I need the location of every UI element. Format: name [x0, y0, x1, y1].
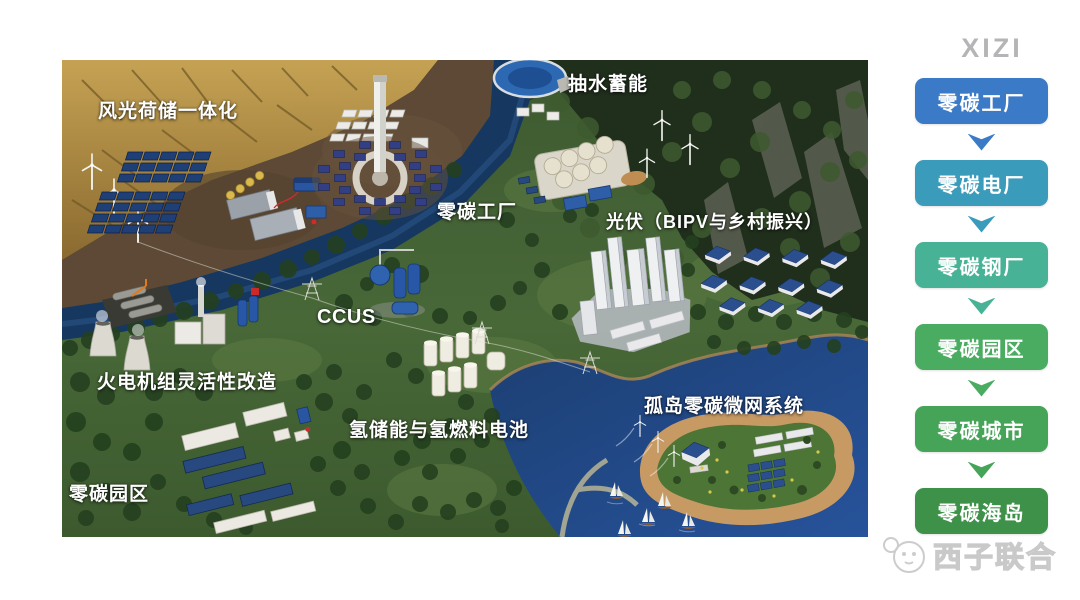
- label-wind-solar-load-storage: 风光荷储一体化: [98, 96, 238, 123]
- arrow-down-icon: [968, 298, 996, 315]
- flow-step-zero-carbon-city[interactable]: 零碳城市: [915, 406, 1048, 452]
- arrow-down-icon: [968, 134, 996, 151]
- watermark: 西子联合: [881, 533, 1057, 577]
- label-pv-bipv-rural: 光伏（BIPV与乡村振兴）: [606, 208, 823, 234]
- label-ccus: CCUS: [317, 306, 376, 329]
- xizi-logo: XIZI: [936, 33, 1048, 64]
- flow-step-zero-carbon-power-plant[interactable]: 零碳电厂: [915, 160, 1048, 206]
- arrow-down-icon: [968, 216, 996, 233]
- flow-step-zero-carbon-park[interactable]: 零碳园区: [915, 324, 1048, 370]
- zero-carbon-flow-sidebar: 零碳工厂 零碳电厂 零碳钢厂 零碳园区 零碳城市 零碳海岛: [915, 78, 1048, 534]
- label-pumped-storage: 抽水蓄能: [568, 69, 648, 96]
- flow-step-zero-carbon-factory[interactable]: 零碳工厂: [915, 78, 1048, 124]
- landscape-render: [62, 60, 868, 537]
- flow-step-zero-carbon-island[interactable]: 零碳海岛: [915, 488, 1048, 534]
- label-zero-carbon-park: 零碳园区: [69, 479, 149, 506]
- label-hydrogen-storage-fuel-cell: 氢储能与氢燃料电池: [349, 415, 529, 442]
- label-island-microgrid: 孤岛零碳微网系统: [644, 391, 804, 418]
- xizi-mascot-icon: [881, 533, 927, 577]
- label-thermal-flexibility-retrofit: 火电机组灵活性改造: [97, 367, 277, 394]
- island-microgrid: [640, 411, 855, 526]
- watermark-text: 西子联合: [933, 534, 1057, 576]
- flow-step-zero-carbon-steel-plant[interactable]: 零碳钢厂: [915, 242, 1048, 288]
- arrow-down-icon: [968, 462, 996, 479]
- label-zero-carbon-factory: 零碳工厂: [437, 197, 517, 224]
- energy-landscape-illustration: 风光荷储一体化 抽水蓄能 零碳工厂 光伏（BIPV与乡村振兴） CCUS 火电机…: [62, 60, 868, 537]
- arrow-down-icon: [968, 380, 996, 397]
